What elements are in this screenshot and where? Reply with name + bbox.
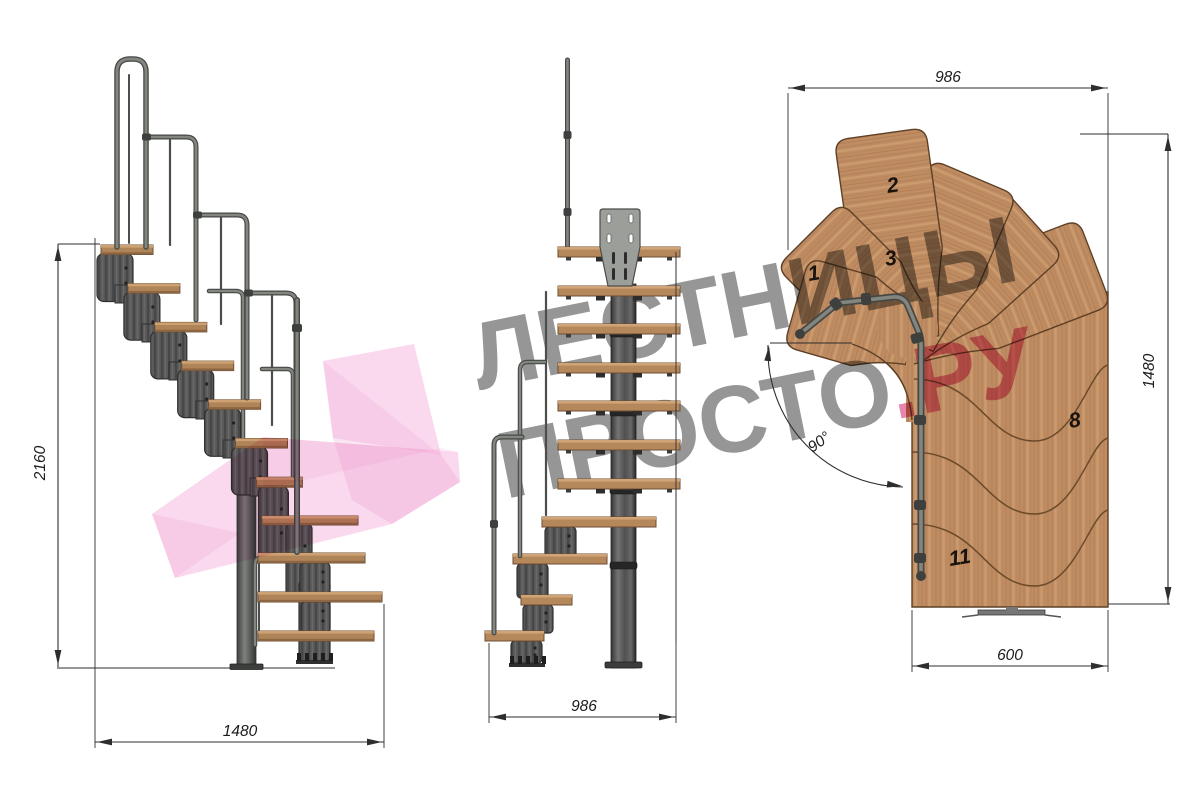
svg-text:1480: 1480	[223, 723, 258, 740]
svg-text:600: 600	[997, 647, 1023, 664]
svg-text:986: 986	[571, 698, 597, 715]
svg-text:2160: 2160	[32, 445, 49, 481]
svg-text:1480: 1480	[1141, 353, 1158, 388]
svg-text:11: 11	[947, 545, 972, 571]
svg-text:986: 986	[935, 69, 961, 86]
